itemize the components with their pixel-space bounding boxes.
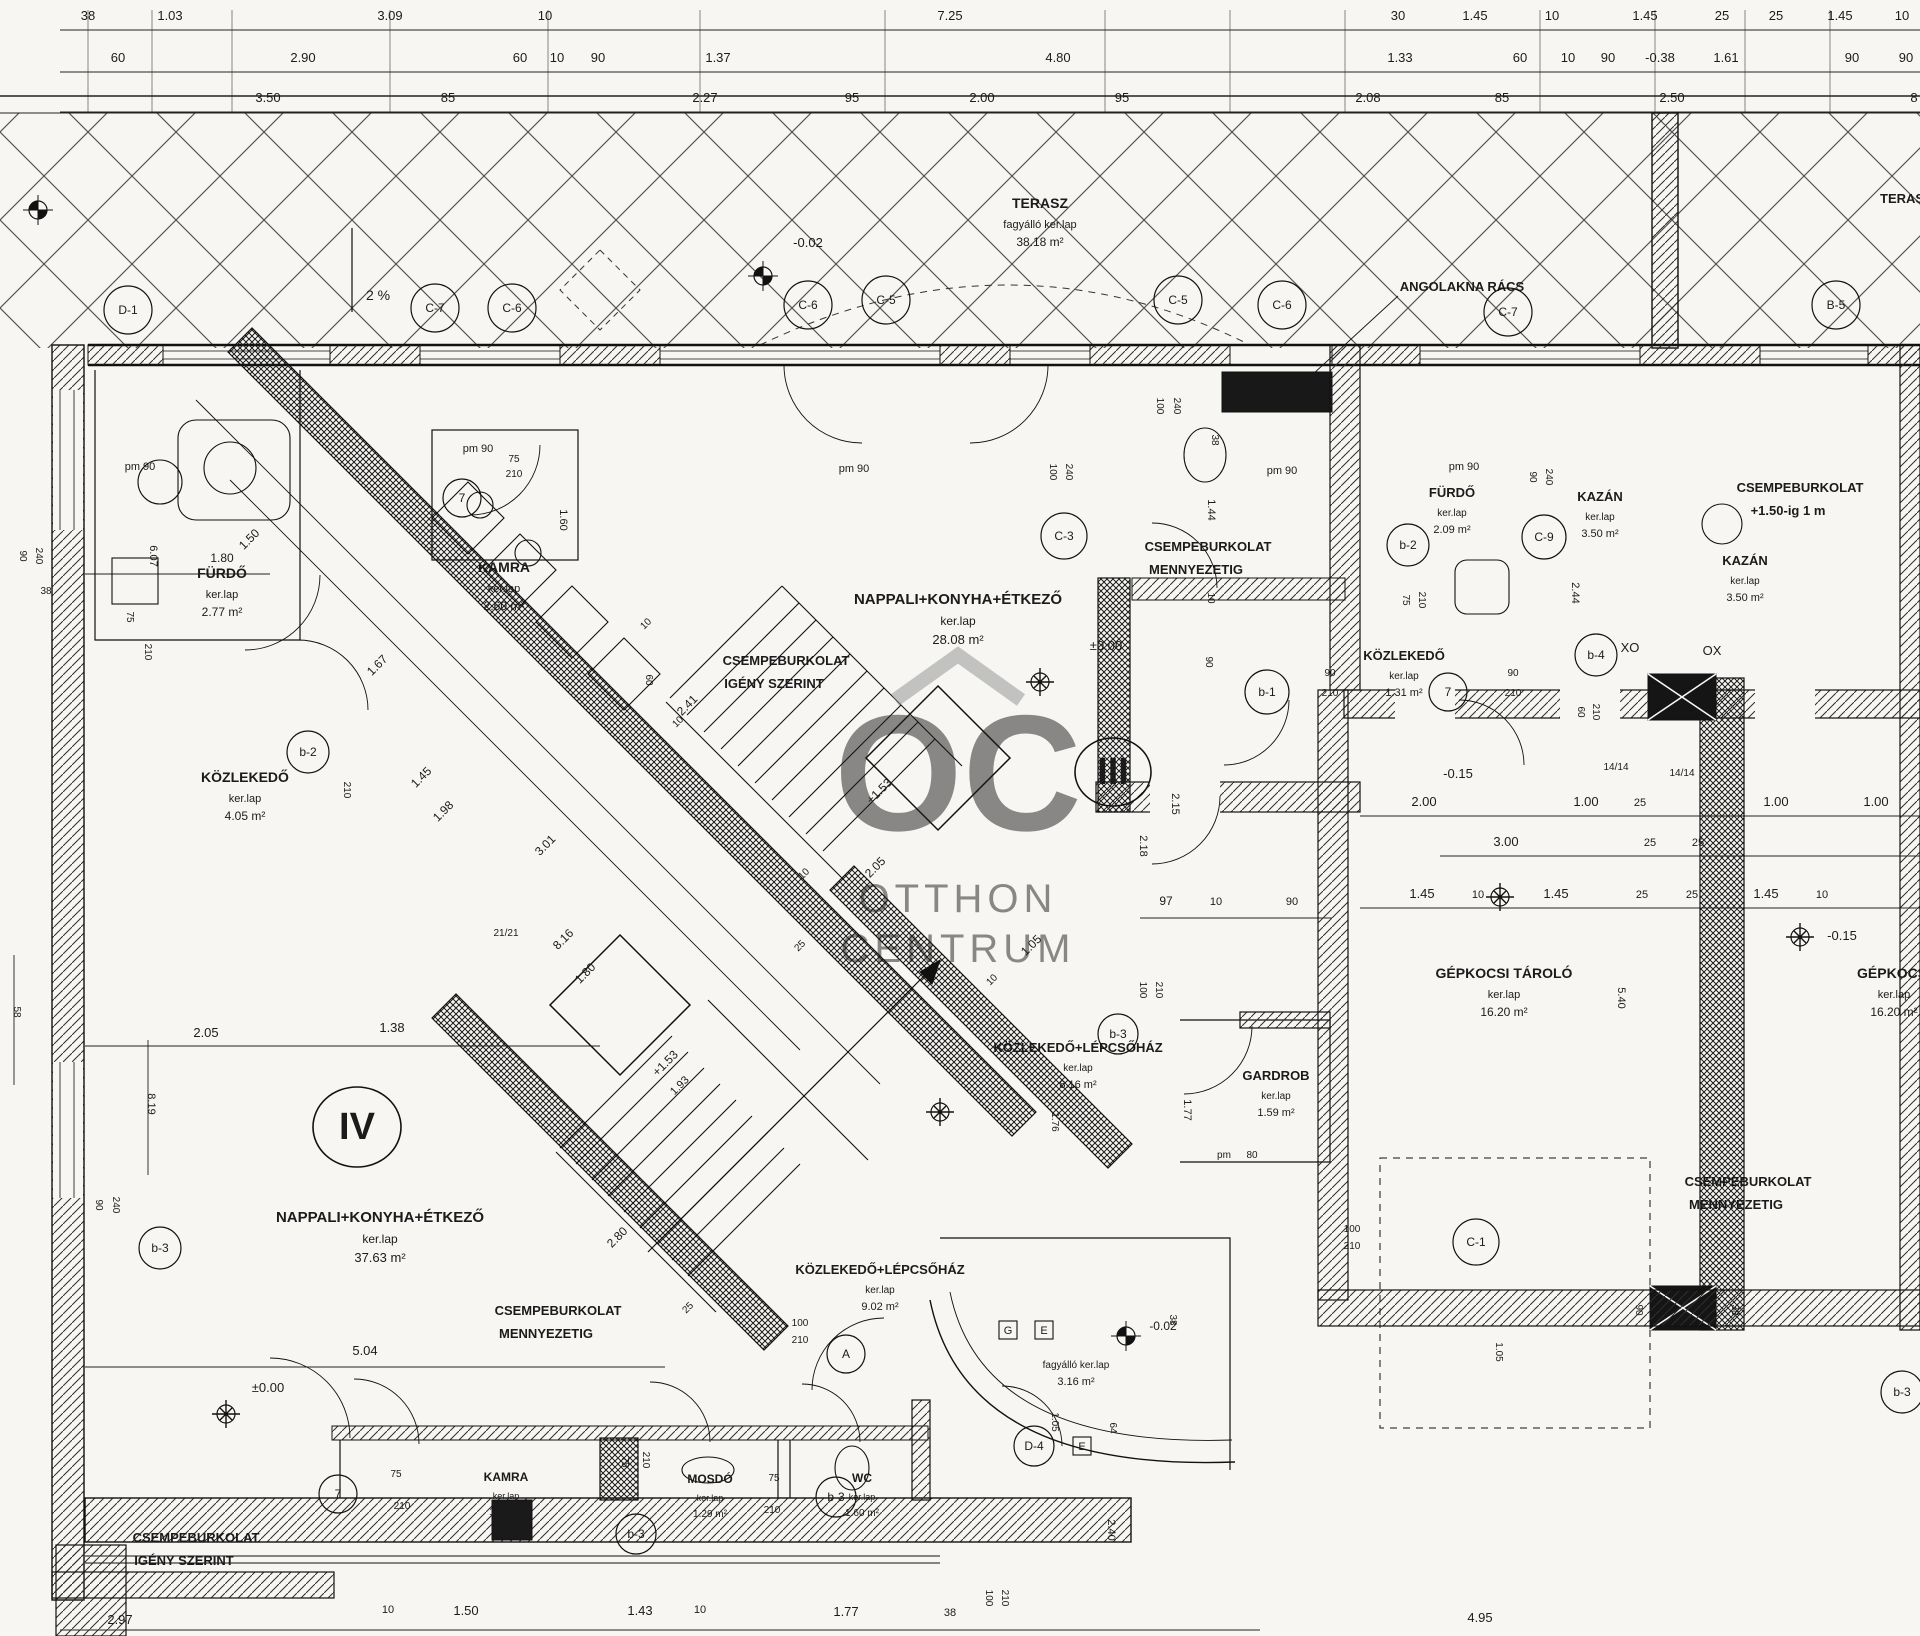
room-name: KAZÁN bbox=[1722, 553, 1768, 568]
dim-label: ±0.00 bbox=[1090, 638, 1122, 653]
dim-label: 210 bbox=[764, 1505, 781, 1516]
dim-label: 38 bbox=[1729, 1304, 1740, 1316]
dim-label: 1.45 bbox=[1632, 8, 1657, 23]
dim-label: -0.15 bbox=[1827, 928, 1857, 943]
note-line: IGÉNY SZERINT bbox=[134, 1553, 234, 1568]
room-finish: ker.lap bbox=[1063, 1063, 1093, 1074]
dim-label: 1.05 bbox=[1493, 1342, 1504, 1362]
room-name: GÉPKOCSI TÁROLÓ bbox=[1436, 964, 1573, 981]
masonry-block bbox=[1222, 372, 1332, 412]
note-line: TERASZ bbox=[1880, 191, 1920, 206]
marker-square-label: E bbox=[1078, 1441, 1085, 1453]
dim-label: 2 % bbox=[366, 287, 390, 303]
dim-label: 21/21 bbox=[493, 928, 518, 939]
dim-label: 90 bbox=[1845, 50, 1859, 65]
room-finish: ker.lap bbox=[493, 1491, 520, 1501]
marker-square-label: G bbox=[1004, 1325, 1013, 1337]
dim-label: 10 bbox=[1895, 8, 1909, 23]
dim-label: 10 bbox=[1472, 889, 1484, 901]
room-area: 16.20 m² bbox=[1870, 1005, 1917, 1019]
grid-bubble-label: b-3 bbox=[151, 1241, 169, 1255]
dim-label: XO bbox=[1621, 640, 1640, 655]
room-name: NAPPALI+KONYHA+ÉTKEZŐ bbox=[276, 1208, 484, 1226]
dim-label: 210 bbox=[1153, 982, 1164, 999]
dim-label: 8 bbox=[1910, 90, 1917, 105]
dim-label: 1.38 bbox=[379, 1020, 404, 1035]
dim-label: 25 bbox=[1692, 837, 1704, 849]
dim-label: 38 bbox=[944, 1607, 956, 1619]
dim-label: 1.61 bbox=[1713, 50, 1738, 65]
note-line: ANGOLAKNA RÁCS bbox=[1400, 279, 1525, 294]
dim-label: 2.05 bbox=[193, 1025, 218, 1040]
dim-label: 10 bbox=[538, 8, 552, 23]
dim-label: 1.43 bbox=[627, 1603, 652, 1618]
dim-label: 1.00 bbox=[1863, 794, 1888, 809]
dim-label: 80 bbox=[1246, 1150, 1258, 1161]
room-finish: fagyálló ker.lap bbox=[1043, 1360, 1110, 1371]
room-finish: ker.lap bbox=[1389, 671, 1419, 682]
room-name: KAMRA bbox=[478, 559, 530, 575]
dim-label: 60 bbox=[111, 50, 125, 65]
dim-label: pm 90 bbox=[463, 443, 494, 455]
dim-label: 90 bbox=[1527, 471, 1538, 483]
note-line: CSEMPEBURKOLAT bbox=[723, 653, 850, 668]
dim-label: 1.60 bbox=[557, 509, 569, 530]
dim-label: 10 bbox=[1545, 8, 1559, 23]
watermark-logo: OC bbox=[834, 681, 1082, 865]
dim-label: 75 bbox=[619, 1456, 630, 1468]
dim-label: 210 bbox=[792, 1335, 809, 1346]
dim-label: -0.02 bbox=[793, 235, 823, 250]
grid-bubble-label: 7 bbox=[1445, 685, 1452, 699]
dim-label: 90 bbox=[1899, 50, 1913, 65]
dim-label: 7.25 bbox=[937, 8, 962, 23]
dim-label: 3.50 bbox=[255, 90, 280, 105]
dim-label: pm 90 bbox=[1449, 461, 1480, 473]
dim-label: pm 90 bbox=[839, 463, 870, 475]
dim-label: 100 bbox=[1137, 982, 1148, 999]
note-line: MENNYEZETIG bbox=[1689, 1197, 1783, 1212]
grid-bubble-label: C-6 bbox=[1272, 298, 1292, 312]
dim-label: 2.00 bbox=[1411, 794, 1436, 809]
dim-label: 10 bbox=[1561, 50, 1575, 65]
dim-label: 90 bbox=[1633, 1304, 1644, 1316]
dim-label: 75 bbox=[390, 1469, 402, 1480]
chimney-block bbox=[492, 1500, 532, 1540]
room-finish: ker.lap bbox=[1730, 576, 1760, 587]
dim-label: 10 bbox=[1816, 889, 1828, 901]
dim-label: 3.09 bbox=[377, 8, 402, 23]
dim-label: 25 bbox=[1636, 889, 1648, 901]
dim-label: 1.05 bbox=[1049, 1412, 1060, 1432]
dim-label: 1.45 bbox=[1462, 8, 1487, 23]
dim-label: 10 bbox=[1210, 896, 1222, 908]
watermark-line2: CENTRUM bbox=[841, 927, 1076, 971]
room-area: 28.08 m² bbox=[932, 632, 984, 647]
dim-label: 1.77 bbox=[1181, 1099, 1193, 1120]
dim-label: 97 bbox=[1159, 894, 1173, 908]
room-name: KÖZLEKEDŐ bbox=[1363, 648, 1445, 663]
dim-label: 210 bbox=[1505, 688, 1522, 699]
dim-label: 2.15 bbox=[1169, 793, 1181, 814]
room-name: GÉPKOCSI bbox=[1857, 965, 1920, 981]
dim-label: 6.07 bbox=[147, 545, 159, 566]
dim-label: 3.00 bbox=[1493, 834, 1518, 849]
dim-label: pm bbox=[1217, 1150, 1231, 1161]
room-name: GARDROB bbox=[1242, 1068, 1309, 1083]
dim-label: 25 bbox=[1715, 8, 1729, 23]
room-finish: fagyálló ker.lap bbox=[1003, 219, 1076, 231]
dim-label: 100 bbox=[1344, 1224, 1361, 1235]
dim-label: 240 bbox=[1171, 398, 1182, 415]
dim-label: 8.19 bbox=[145, 1093, 157, 1114]
room-finish: ker.lap bbox=[1585, 512, 1615, 523]
dim-label: 25 bbox=[1686, 889, 1698, 901]
floor-plan-sheet: OC OTTHON CENTRUM 381.033.09107.25301.45… bbox=[0, 0, 1920, 1636]
room-finish: ker.lap bbox=[940, 614, 976, 628]
dim-label: 100 bbox=[792, 1318, 809, 1329]
grid-bubble-label: b-2 bbox=[299, 745, 317, 759]
room-area: 1.31 m² bbox=[1385, 687, 1423, 699]
dim-label: 210 bbox=[1344, 1241, 1361, 1252]
terrace-area bbox=[0, 96, 1920, 386]
watermark-line1: OTTHON bbox=[859, 877, 1058, 921]
room-finish: ker.lap bbox=[362, 1232, 398, 1246]
dim-label: 1.45 bbox=[1409, 886, 1434, 901]
room-area: 8.16 m² bbox=[1059, 1079, 1097, 1091]
room-area: 2.77 m² bbox=[202, 605, 243, 619]
dim-label: 2.00 bbox=[969, 90, 994, 105]
note-line: CSEMPEBURKOLAT bbox=[1685, 1174, 1812, 1189]
dim-label: 64 bbox=[1107, 1422, 1118, 1434]
dim-label: 5.40 bbox=[1615, 987, 1627, 1008]
room-area: 3.50 m² bbox=[1581, 528, 1619, 540]
grid-bubble-label: C-1 bbox=[1466, 1235, 1486, 1249]
grid-bubble-label: C-7 bbox=[1498, 305, 1518, 319]
note-line: CSEMPEBURKOLAT bbox=[1737, 480, 1864, 495]
dim-label: 10 bbox=[694, 1604, 706, 1616]
dim-label: 75 bbox=[768, 1473, 780, 1484]
room-name: FÜRDŐ bbox=[197, 564, 247, 581]
room-name: WC bbox=[852, 1471, 872, 1485]
dim-label: 100 bbox=[983, 1590, 994, 1607]
dim-label: -0.15 bbox=[1443, 766, 1473, 781]
dim-label: 2.90 bbox=[290, 50, 315, 65]
note-line: CSEMPEBURKOLAT bbox=[133, 1530, 260, 1545]
note-line: IGÉNY SZERINT bbox=[724, 676, 824, 691]
room-finish: ker.lap bbox=[849, 1492, 876, 1502]
dim-label: 1.80 bbox=[210, 551, 234, 565]
dim-label: 5.04 bbox=[352, 1343, 377, 1358]
dim-label: 95 bbox=[845, 90, 859, 105]
dim-label: 75 bbox=[1400, 594, 1411, 606]
room-area: 37.63 m² bbox=[354, 1250, 406, 1265]
dim-label: 25 bbox=[1644, 837, 1656, 849]
room-finish: ker.lap bbox=[697, 1493, 724, 1503]
unit-number: III bbox=[1097, 751, 1129, 793]
dim-label: 2.40 bbox=[1105, 1519, 1117, 1540]
grid-bubble-label: 7 bbox=[335, 1487, 342, 1501]
room-area: 3.50 m² bbox=[1726, 592, 1764, 604]
dim-label: 2.44 bbox=[1569, 582, 1581, 603]
dim-label: 60 bbox=[513, 50, 527, 65]
room-finish: ker.lap bbox=[1488, 989, 1520, 1001]
room-area: 2.09 m² bbox=[1433, 524, 1471, 536]
dim-label: 95 bbox=[1115, 90, 1129, 105]
dim-label: 90 bbox=[1601, 50, 1615, 65]
dim-label: 10 bbox=[382, 1604, 394, 1616]
dim-label: 90 bbox=[17, 550, 28, 562]
dim-label: 38 bbox=[81, 8, 95, 23]
dim-label: OX bbox=[1703, 643, 1722, 658]
dim-label: 1.44 bbox=[1205, 499, 1217, 520]
dim-label: 1.76 bbox=[1049, 1112, 1060, 1132]
marker-square-label: E bbox=[1040, 1325, 1047, 1337]
dim-label: 25 bbox=[1769, 8, 1783, 23]
dim-label: 38 bbox=[1209, 434, 1220, 446]
room-area: 4.05 m² bbox=[225, 809, 266, 823]
note-line: CSEMPEBURKOLAT bbox=[495, 1303, 622, 1318]
grid-bubble-label: C-5 bbox=[876, 293, 896, 307]
grid-bubble-label: 7 bbox=[459, 491, 466, 505]
room-name: KÖZLEKEDŐ+LÉPCSŐHÁZ bbox=[795, 1262, 964, 1277]
dim-label: 90 bbox=[93, 1199, 104, 1211]
grid-bubble-label: B-5 bbox=[1827, 298, 1846, 312]
dim-label: pm 90 bbox=[125, 461, 156, 473]
dim-label: 210 bbox=[640, 1452, 651, 1469]
room-area: 9.02 m² bbox=[861, 1301, 899, 1313]
note-line: CSEMPEBURKOLAT bbox=[1145, 539, 1272, 554]
grid-bubble-label: b-3 bbox=[827, 1490, 845, 1504]
dim-label: 10 bbox=[550, 50, 564, 65]
room-name: KAMRA bbox=[484, 1470, 529, 1484]
dim-label: 210 bbox=[394, 1501, 411, 1512]
unit-number: IV bbox=[339, 1106, 376, 1148]
dim-label: 2.08 bbox=[1355, 90, 1380, 105]
dim-label: 210 bbox=[506, 469, 523, 480]
dim-label: 1.50 bbox=[453, 1603, 478, 1618]
grid-bubble-label: C-7 bbox=[425, 301, 445, 315]
room-name: FÜRDŐ bbox=[1429, 485, 1475, 500]
dim-label: 14/14 bbox=[1603, 762, 1628, 773]
room-name: KÖZLEKEDŐ bbox=[201, 768, 289, 785]
dim-label: 240 bbox=[1543, 469, 1554, 486]
dim-label: 90 bbox=[1507, 668, 1519, 679]
dim-label: 210 bbox=[142, 644, 153, 661]
note-line: MENNYEZETIG bbox=[1149, 562, 1243, 577]
dim-label: 1.45 bbox=[1753, 886, 1778, 901]
grid-bubble-label: b-1 bbox=[1258, 685, 1276, 699]
grid-bubble-label: b-2 bbox=[1399, 538, 1417, 552]
dim-label: 25 bbox=[1634, 797, 1646, 809]
room-finish: ker.lap bbox=[1261, 1091, 1291, 1102]
dim-label: 85 bbox=[441, 90, 455, 105]
dim-label: 1.45 bbox=[1543, 886, 1568, 901]
room-finish: ker.lap bbox=[1878, 989, 1910, 1001]
dim-label: 1.33 bbox=[1387, 50, 1412, 65]
room-name: KÖZLEKEDŐ+LÉPCSŐHÁZ bbox=[993, 1040, 1162, 1055]
dim-label: 14/14 bbox=[1669, 768, 1694, 779]
room-area: 1.59 m² bbox=[1257, 1107, 1295, 1119]
grid-bubble-label: b-4 bbox=[1587, 648, 1605, 662]
room-area: 38.18 m² bbox=[1016, 235, 1063, 249]
dim-label: 30 bbox=[1391, 8, 1405, 23]
dim-label: 1.45 bbox=[1827, 8, 1852, 23]
room-finish: ker.lap bbox=[229, 793, 261, 805]
dim-label: 2.50 bbox=[1659, 90, 1684, 105]
grid-bubble-label: b-3 bbox=[627, 1527, 645, 1541]
note-line: +1.50-ig 1 m bbox=[1751, 503, 1826, 518]
room-area: 1.60 m² bbox=[845, 1508, 880, 1519]
dim-label: 75 bbox=[124, 611, 135, 623]
note-line: MENNYEZETIG bbox=[499, 1326, 593, 1341]
room-finish: ker.lap bbox=[1437, 508, 1467, 519]
dim-label: 210 bbox=[1416, 592, 1427, 609]
grid-bubble-label: C-6 bbox=[798, 298, 818, 312]
dim-label: pm 90 bbox=[1267, 465, 1298, 477]
boiler bbox=[1702, 504, 1742, 544]
dim-label: 1.00 bbox=[1573, 794, 1598, 809]
grid-bubble-label: D-1 bbox=[118, 303, 138, 317]
room-name: TERASZ bbox=[1012, 195, 1068, 211]
dim-label: 210 bbox=[999, 1590, 1010, 1607]
room-area: 1.29 m² bbox=[693, 1509, 728, 1520]
dim-label: 38 bbox=[1167, 1314, 1178, 1326]
dim-label: 240 bbox=[33, 548, 44, 565]
dim-label: 210 bbox=[341, 782, 352, 799]
room-finish: ker.lap bbox=[488, 583, 520, 595]
grid-bubble-label: b-3 bbox=[1109, 1027, 1127, 1041]
dim-label: 60 bbox=[1513, 50, 1527, 65]
room-area: 3.16 m² bbox=[1057, 1376, 1095, 1388]
dim-label: 90 bbox=[1203, 656, 1214, 668]
room-name: MOSDÓ bbox=[687, 1471, 732, 1486]
grid-bubble-label: C-3 bbox=[1054, 529, 1074, 543]
party-wall-dark bbox=[1700, 678, 1744, 1330]
dim-label: 2.97 bbox=[107, 1612, 132, 1627]
dim-label: 2.18 bbox=[1137, 835, 1149, 856]
room-finish: ker.lap bbox=[865, 1285, 895, 1296]
dim-label: 1.03 bbox=[157, 8, 182, 23]
dim-label: 4.95 bbox=[1467, 1610, 1492, 1625]
room-area: 16.20 m² bbox=[1480, 1005, 1527, 1019]
dim-label: 240 bbox=[1063, 464, 1074, 481]
dim-label: 90 bbox=[1324, 668, 1336, 679]
room-area: 2.60 m² bbox=[484, 599, 525, 613]
room-name: KAZÁN bbox=[1577, 489, 1623, 504]
dim-label: 240 bbox=[110, 1197, 121, 1214]
grid-bubble-label: A bbox=[842, 1347, 850, 1361]
dim-label: 210 bbox=[1322, 688, 1339, 699]
dim-label: 1.77 bbox=[833, 1604, 858, 1619]
dim-label: -0.38 bbox=[1645, 50, 1675, 65]
room-name: NAPPALI+KONYHA+ÉTKEZŐ bbox=[854, 590, 1062, 608]
room-area: 1.36 m² bbox=[489, 1507, 524, 1518]
grid-bubble-label: C-9 bbox=[1534, 530, 1554, 544]
grid-bubble-label: C-6 bbox=[502, 301, 522, 315]
grid-bubble-label: b-3 bbox=[1893, 1385, 1911, 1399]
dim-label: 1.37 bbox=[705, 50, 730, 65]
dim-label: ±0.00 bbox=[252, 1380, 284, 1395]
dim-label: 60 bbox=[1575, 706, 1586, 718]
dim-label: 1.00 bbox=[1763, 794, 1788, 809]
dim-label: 75 bbox=[508, 454, 520, 465]
grid-bubble-label: D-4 bbox=[1024, 1439, 1044, 1453]
dim-label: 85 bbox=[1495, 90, 1509, 105]
dim-label: 38 bbox=[40, 586, 52, 597]
dim-label: 210 bbox=[1590, 704, 1601, 721]
dim-label: 100 bbox=[1047, 464, 1058, 481]
dim-label: 100 bbox=[1154, 398, 1165, 415]
dim-label: 10 bbox=[1205, 592, 1216, 604]
floor-plan-canvas: OC OTTHON CENTRUM 381.033.09107.25301.45… bbox=[0, 0, 1920, 1636]
dim-label: 2.27 bbox=[692, 90, 717, 105]
room-finish: ker.lap bbox=[206, 589, 238, 601]
dim-label: 58 bbox=[11, 1006, 22, 1018]
dim-label: 60 bbox=[643, 674, 654, 686]
dim-label: 4.80 bbox=[1045, 50, 1070, 65]
grid-bubble-label: C-5 bbox=[1168, 293, 1188, 307]
dim-label: 90 bbox=[591, 50, 605, 65]
dim-label: 90 bbox=[1286, 896, 1298, 908]
